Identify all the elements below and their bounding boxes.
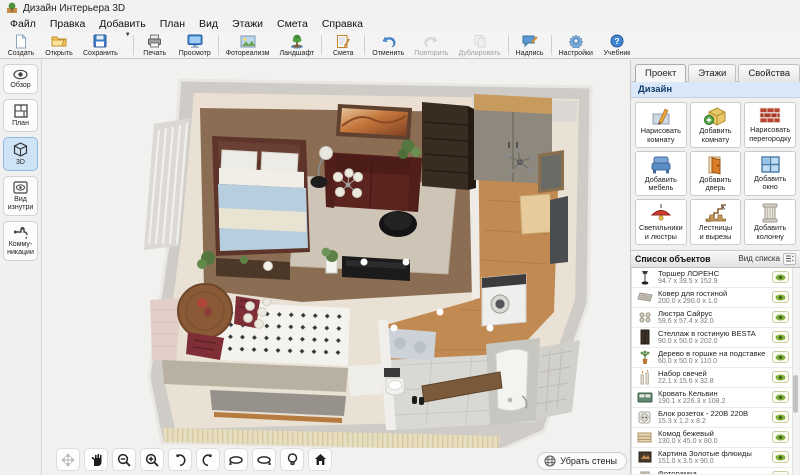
photorealism-icon: [240, 34, 256, 49]
add-column-icon: [761, 203, 779, 223]
tutorial-button[interactable]: ? Учебник: [598, 32, 636, 58]
zoom-in-icon: [145, 453, 159, 467]
list-view-icon: [785, 254, 794, 263]
draw-room-button[interactable]: Нарисовать комнату: [635, 102, 687, 148]
estimate-notepad-icon: [336, 34, 350, 49]
save-button[interactable]: Сохранить: [78, 32, 123, 58]
rug-thumbnail: [636, 289, 653, 305]
plumbing-icon: [13, 226, 29, 239]
view-mode-label: Вид списка: [738, 254, 780, 263]
plant-thumbnail: [636, 349, 653, 365]
wall-mirror: [538, 150, 564, 193]
hall-bench[interactable]: [520, 194, 552, 234]
object-row-rug[interactable]: Ковер для гостиной200.0 x 290.0 x 1.0: [632, 288, 799, 308]
object-list-title: Список объектов: [635, 254, 711, 264]
sidebar-item-plan[interactable]: План: [3, 99, 38, 132]
tab-floors[interactable]: Этажи: [688, 64, 736, 82]
window-title: Дизайн Интерьера 3D: [23, 3, 125, 14]
eye-icon: [775, 414, 786, 421]
dining-table[interactable]: [178, 284, 232, 338]
cube-3d-icon: [13, 142, 28, 157]
menu-plan[interactable]: План: [153, 17, 192, 31]
object-row-dresser[interactable]: Комод бежевый130.0 x 45.0 x 80.0: [632, 428, 799, 448]
title-bar: Дизайн Интерьера 3D: [0, 0, 800, 16]
object-row-floor-lamp[interactable]: Торшер ЛОРЕНС94.7 x 39.5 x 152.9: [632, 268, 799, 288]
photorealism-button[interactable]: Фотореализм: [221, 32, 275, 58]
bathroom-entry-mat: [386, 328, 436, 360]
menu-view[interactable]: Вид: [192, 17, 225, 31]
add-window-button[interactable]: Добавить окно: [744, 151, 796, 197]
sidebar-item-inside-view[interactable]: Вид изнутри: [3, 176, 38, 216]
add-furniture-button[interactable]: Добавить мебель: [635, 151, 687, 197]
main-toolbar: Создать Открыть Сохранить ▼ Печать Просм…: [0, 32, 800, 59]
print-button[interactable]: Печать: [136, 32, 174, 58]
tab-project[interactable]: Проект: [635, 64, 686, 82]
pan-tool-button[interactable]: [84, 448, 108, 471]
open-folder-icon: [51, 34, 67, 49]
redo-icon: [424, 34, 439, 49]
visibility-toggle[interactable]: [772, 471, 789, 474]
estimate-button[interactable]: Смета: [324, 32, 362, 58]
duplicate-icon: [473, 34, 487, 49]
home-view-icon: [314, 453, 327, 466]
plan-2d-icon: [14, 104, 28, 118]
object-row-candles[interactable]: Набор свечей22.1 x 15.6 x 32.8: [632, 368, 799, 388]
toolbar-separator: [364, 35, 365, 55]
overview-eye-icon: [13, 69, 28, 80]
visibility-toggle[interactable]: [772, 351, 789, 363]
orbit-left-button[interactable]: [224, 448, 248, 471]
design-tools-grid: Нарисовать комнату Добавить комнату Нари…: [631, 98, 800, 250]
toolbar-separator: [321, 35, 322, 55]
eye-icon: [775, 274, 786, 281]
visibility-toggle[interactable]: [772, 451, 789, 463]
save-floppy-icon: [93, 34, 107, 49]
draw-partition-icon: [759, 106, 781, 125]
light-icon: [287, 453, 298, 467]
orbit-right-icon: [256, 454, 272, 466]
object-row-bed[interactable]: Кровать Кельвин190.1 x 226.3 x 108.2: [632, 388, 799, 408]
photo-frame-thumbnail: [636, 469, 653, 474]
object-row-chandelier[interactable]: Люстра Сайрус59.6 x 57.4 x 32.0: [632, 308, 799, 328]
bed-thumbnail: [636, 389, 653, 405]
menu-help[interactable]: Справка: [315, 17, 370, 31]
chandelier-thumbnail: [636, 309, 653, 325]
visibility-toggle[interactable]: [772, 311, 789, 323]
visibility-toggle[interactable]: [772, 371, 789, 383]
home-view-button[interactable]: [308, 448, 332, 471]
visibility-toggle[interactable]: [772, 331, 789, 343]
eye-icon: [775, 394, 786, 401]
tutorial-help-icon: ?: [610, 34, 624, 49]
open-button[interactable]: Открыть: [40, 32, 78, 58]
painting-thumbnail: [636, 449, 653, 465]
orbit-left-icon: [228, 454, 244, 466]
landscape-tree-icon: [290, 34, 304, 49]
zoom-in-button[interactable]: [140, 448, 164, 471]
object-list-scrollbar[interactable]: [792, 268, 799, 475]
toolbar-separator: [508, 35, 509, 55]
lamps-icon: [650, 203, 672, 223]
remove-walls-button[interactable]: Убрать стены: [537, 452, 627, 470]
scrollbar-thumb[interactable]: [793, 375, 798, 413]
add-furniture-icon: [650, 155, 672, 175]
rotate-cw-icon: [201, 453, 215, 467]
pan-hand-icon: [90, 453, 103, 467]
visibility-toggle[interactable]: [772, 291, 789, 303]
menu-file[interactable]: Файл: [3, 17, 43, 31]
duplicate-button: Дублировать: [453, 32, 505, 58]
shelf-thumbnail: [636, 329, 653, 345]
draw-partition-button[interactable]: Нарисовать перегородку: [744, 102, 796, 148]
visibility-toggle[interactable]: [772, 271, 789, 283]
right-panel: Проект Этажи Свойства Дизайн Нарисовать …: [630, 60, 800, 475]
object-row-photo-frame[interactable]: Фоторамка12.2 x 3.0 x 17.2: [632, 468, 799, 475]
menu-bar: Файл Правка Добавить План Вид Этажи Смет…: [0, 16, 800, 32]
visibility-toggle[interactable]: [772, 391, 789, 403]
lamps-button[interactable]: Светильники и люстры: [635, 199, 687, 245]
menu-floors[interactable]: Этажи: [225, 17, 270, 31]
text-label-icon: [522, 34, 538, 49]
zoom-out-icon: [117, 453, 131, 467]
rotate-ccw-button[interactable]: [168, 448, 192, 471]
object-row-socket[interactable]: Блок розеток - 220В 220В15.3 x 1.2 x 8.2: [632, 408, 799, 428]
socket-thumbnail: [636, 409, 653, 425]
undo-button[interactable]: Отменить: [367, 32, 409, 58]
preview-monitor-icon: [187, 34, 203, 49]
new-button[interactable]: Создать: [2, 32, 40, 58]
eye-icon: [775, 334, 786, 341]
object-row-shelf[interactable]: Стеллаж в гостиную BESTA90.0 x 50.0 x 20…: [632, 328, 799, 348]
eye-icon: [775, 374, 786, 381]
text-label-button[interactable]: Надпись: [511, 32, 549, 58]
dresser-thumbnail: [636, 429, 653, 445]
new-file-icon: [14, 34, 28, 49]
save-dropdown-arrow[interactable]: ▼: [125, 32, 131, 58]
stairs-icon: [704, 203, 726, 223]
move-tool-button[interactable]: [56, 448, 80, 471]
orbit-right-button[interactable]: [252, 448, 276, 471]
object-list-header: Список объектов Вид списка: [631, 250, 800, 268]
print-icon: [147, 34, 162, 49]
redo-button: Повторить: [409, 32, 453, 58]
tab-properties[interactable]: Свойства: [738, 64, 800, 82]
hall-tv-panel: [550, 196, 568, 264]
sidebar-item-communications[interactable]: Комму- никации: [3, 221, 38, 261]
add-door-icon: [705, 155, 725, 175]
add-door-button[interactable]: Добавить дверь: [690, 151, 742, 197]
shelf-unit[interactable]: [422, 102, 476, 190]
toolbar-separator: [133, 35, 134, 55]
floor-lamp-thumbnail: [636, 269, 653, 285]
view-nav-toolbar: [56, 448, 332, 471]
add-column-button[interactable]: Добавить колонну: [744, 199, 796, 245]
eye-icon: [775, 314, 786, 321]
remove-walls-icon: [544, 455, 556, 467]
inside-view-icon: [13, 181, 28, 194]
add-window-icon: [760, 155, 781, 174]
zoom-out-button[interactable]: [112, 448, 136, 471]
rotate-ccw-icon: [173, 453, 187, 467]
toolbar-separator: [218, 35, 219, 55]
undo-icon: [381, 34, 396, 49]
visibility-toggle[interactable]: [772, 431, 789, 443]
view-mode-button[interactable]: [783, 253, 796, 265]
eye-icon: [775, 434, 786, 441]
toolbar-separator: [551, 35, 552, 55]
sidebar-item-overview[interactable]: Обзор: [3, 64, 38, 94]
settings-button[interactable]: Настройки: [554, 32, 598, 58]
preview-button[interactable]: Просмотр: [174, 32, 216, 58]
viewport-3d[interactable]: Убрать стены: [42, 60, 630, 475]
apartment-3d-scene[interactable]: [42, 60, 630, 448]
sidebar-item-3d[interactable]: 3D: [3, 137, 38, 171]
eye-icon: [775, 454, 786, 461]
object-row-painting[interactable]: Картина Золотые флюиды151.0 x 3.5 x 90.0: [632, 448, 799, 468]
remove-walls-label: Убрать стены: [560, 456, 617, 466]
svg-text:?: ?: [614, 36, 619, 46]
menu-add[interactable]: Добавить: [92, 17, 152, 31]
panel-tabs: Проект Этажи Свойства: [631, 60, 800, 82]
add-room-icon: [703, 106, 727, 126]
object-list[interactable]: Торшер ЛОРЕНС94.7 x 39.5 x 152.9 Ковер д…: [631, 268, 799, 475]
eye-icon: [775, 474, 786, 475]
candles-thumbnail: [636, 369, 653, 385]
bed[interactable]: [212, 136, 310, 256]
eye-icon: [775, 354, 786, 361]
light-button[interactable]: [280, 448, 304, 471]
landscape-button[interactable]: Ландшафт: [275, 32, 320, 58]
menu-estimate[interactable]: Смета: [270, 17, 315, 31]
menu-edit[interactable]: Правка: [43, 17, 92, 31]
move-tool-icon: [61, 453, 75, 467]
eye-icon: [775, 294, 786, 301]
settings-gear-icon: [569, 34, 583, 49]
app-icon: [6, 2, 18, 14]
wall-painting[interactable]: [336, 104, 412, 140]
washing-machine[interactable]: [482, 274, 526, 326]
add-room-button[interactable]: Добавить комнату: [690, 102, 742, 148]
tv-screen[interactable]: [342, 256, 410, 281]
coffee-table[interactable]: [379, 211, 417, 237]
object-row-plant[interactable]: Дерево в горшке на подставке60.0 x 50.0 …: [632, 348, 799, 368]
rotate-cw-button[interactable]: [196, 448, 220, 471]
draw-room-icon: [650, 106, 672, 126]
visibility-toggle[interactable]: [772, 411, 789, 423]
design-section-header: Дизайн: [631, 82, 800, 98]
stairs-button[interactable]: Лестницы и вырезы: [690, 199, 742, 245]
view-mode-sidebar: Обзор План 3D Вид изнутри Комму- никации: [0, 60, 42, 475]
